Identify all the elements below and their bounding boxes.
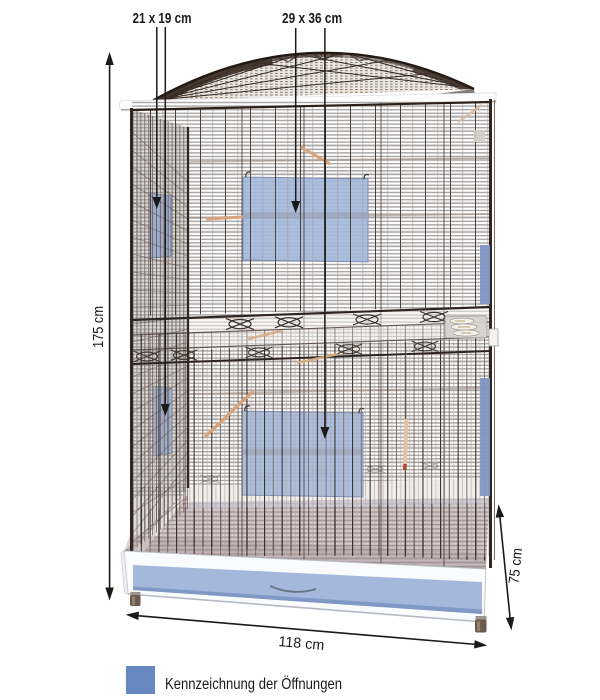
svg-text:21 x 19 cm: 21 x 19 cm (133, 10, 192, 27)
svg-text:175 cm: 175 cm (91, 306, 107, 348)
svg-text:29 x 36 cm: 29 x 36 cm (282, 10, 342, 27)
svg-text:Kennzeichnung der Öffnungen: Kennzeichnung der Öffnungen (165, 675, 342, 693)
